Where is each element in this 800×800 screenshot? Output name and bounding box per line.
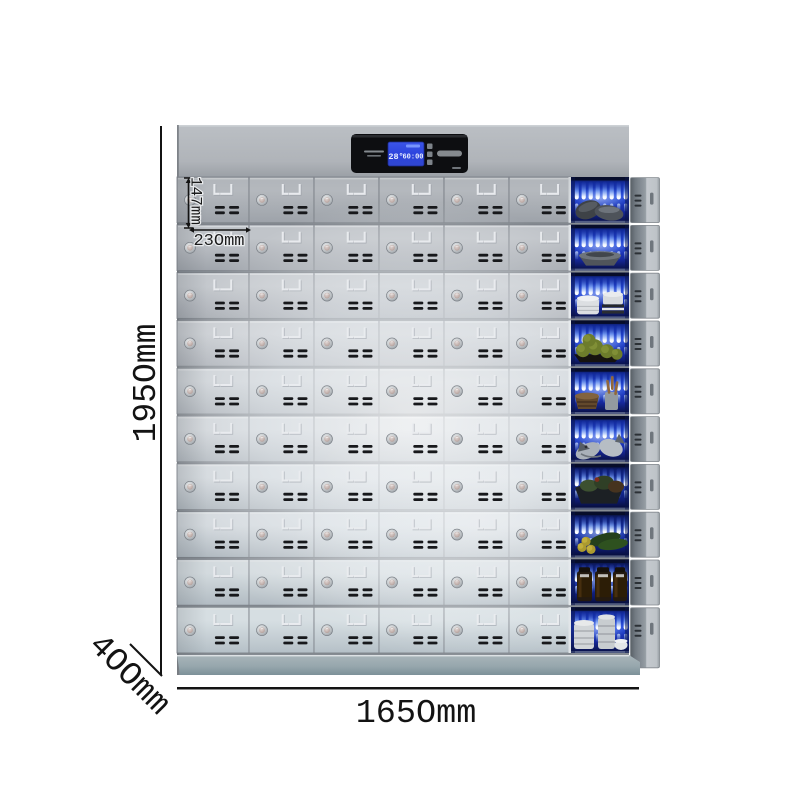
- svg-text:147mm: 147mm: [187, 177, 205, 225]
- svg-text:23Omm: 23Omm: [193, 232, 244, 251]
- svg-text:195Omm: 195Omm: [128, 324, 165, 443]
- svg-text:28°: 28°: [388, 152, 403, 162]
- svg-text:165Omm: 165Omm: [356, 695, 477, 733]
- svg-text:60:00: 60:00: [402, 154, 423, 162]
